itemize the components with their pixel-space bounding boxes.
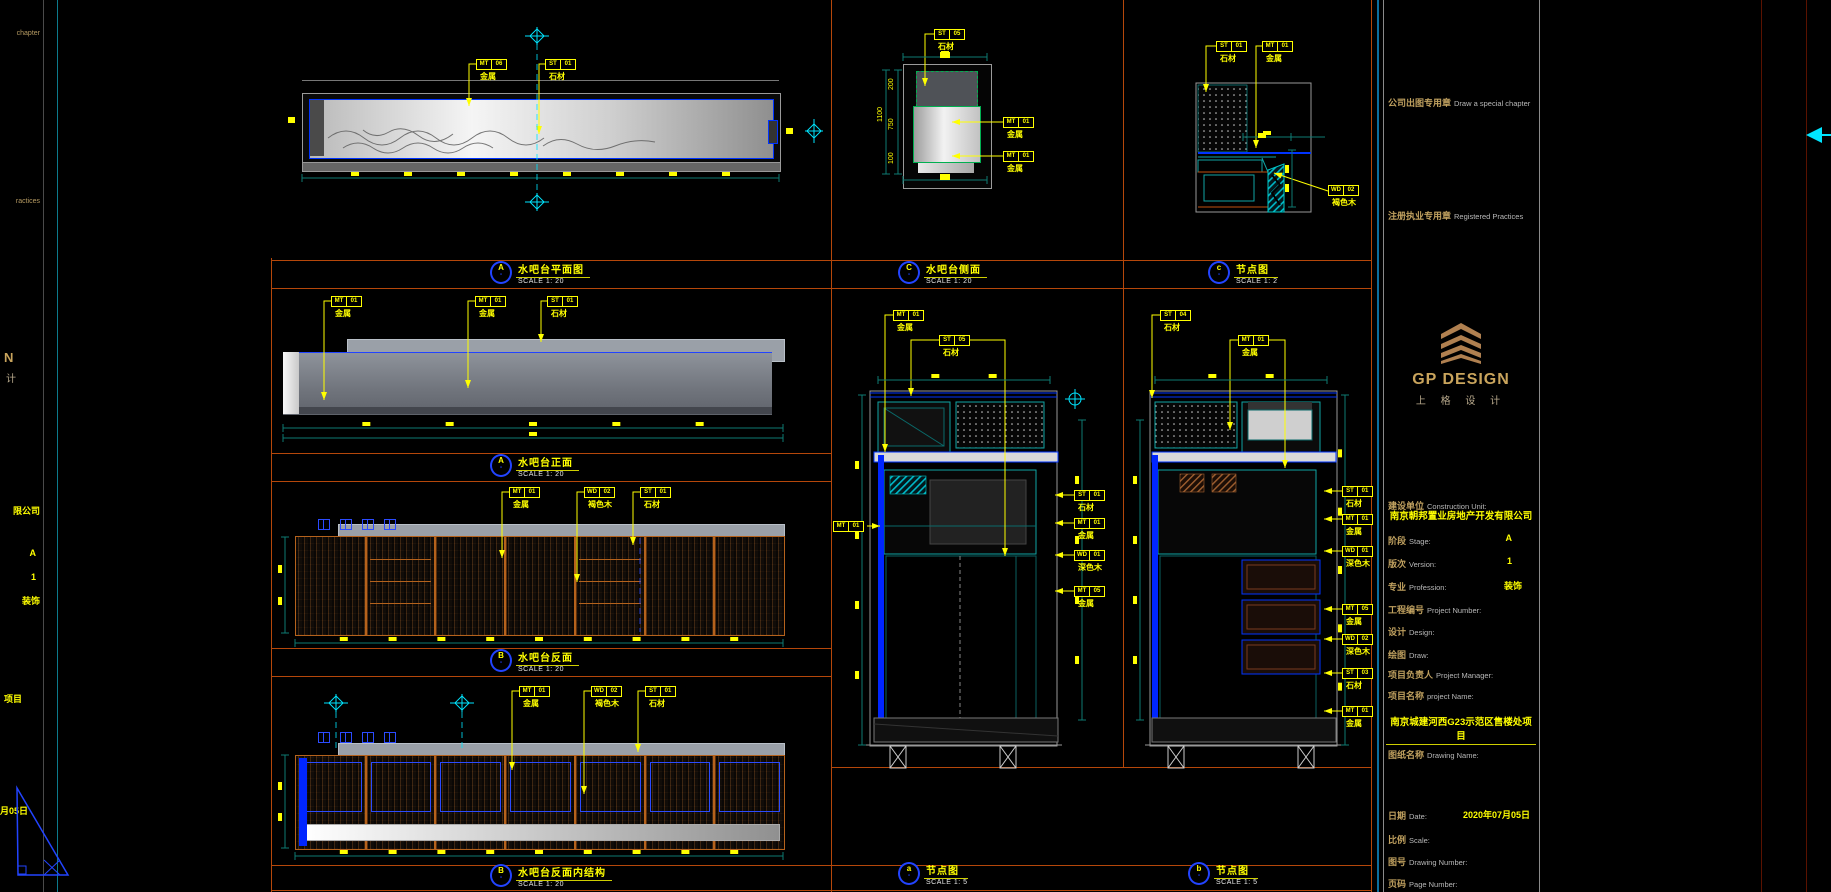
blue-marker-glyph (318, 519, 330, 530)
material-tag-label: 石材 (1164, 322, 1180, 333)
titleblock-left-border (1383, 0, 1384, 892)
view-label-bubble: B- (490, 864, 512, 887)
marble-pattern (323, 118, 743, 158)
material-tag: ST01 (545, 59, 576, 70)
material-tag-label: 深色木 (1346, 646, 1370, 657)
tb-row-drawing-number: 图号Drawing Number: (1388, 852, 1536, 870)
plan-view-drawing (302, 93, 781, 172)
material-tag-label: 金属 (1242, 347, 1258, 358)
view-label: c-节点图SCALE 1: 2 (1208, 261, 1278, 285)
material-tag: MT06 (476, 59, 507, 70)
dim-text: 1100 (877, 107, 884, 122)
plan-end-panel (310, 100, 324, 156)
company-chapter-row: 公司出图专用章Draw a special chapter (1388, 93, 1530, 111)
material-tag: ST01 (1342, 486, 1373, 497)
material-tag: MT01 (475, 296, 506, 307)
datum-target-icon (324, 694, 348, 712)
blue-marker-glyph (384, 732, 396, 743)
tb-row-profession: 专业Profession:装饰 (1388, 577, 1536, 595)
view-title: 水吧台反面内结构 (516, 864, 612, 881)
material-tag: MT01 (1003, 151, 1034, 162)
dim-text: 750 (888, 118, 895, 130)
tb-row-scale: 比例Scale: (1388, 830, 1536, 848)
company-chapter-en: Draw a special chapter (1454, 99, 1530, 108)
view-scale: SCALE 1: 20 (516, 881, 612, 888)
datum-target-icon (525, 193, 549, 211)
material-tag: MT01 (893, 310, 924, 321)
side-view-body (913, 106, 981, 163)
view-title: 水吧台侧面 (924, 261, 987, 278)
left-strip-chapter: chapter (0, 30, 40, 37)
view-label-bubble: A- (490, 261, 512, 284)
datum-target-icon (525, 27, 549, 45)
view-label: A-水吧台平面图SCALE 1: 20 (490, 261, 590, 285)
datum-target-icon (805, 119, 823, 143)
material-tag-label: 金属 (1266, 53, 1282, 64)
view-scale: SCALE 1: 5 (1214, 879, 1258, 886)
view-scale: SCALE 1: 20 (516, 278, 590, 285)
left-strip-practices: ractices (0, 198, 40, 205)
view-label-bubble: A- (490, 454, 512, 477)
logo-name: GP DESIGN (1393, 371, 1529, 389)
view-scale: SCALE 1: 20 (516, 666, 579, 673)
front-elev-end-panel (283, 352, 299, 414)
logo-chevrons-icon (1439, 322, 1483, 364)
dim-text: 200 (888, 78, 895, 90)
material-tag: ST01 (640, 487, 671, 498)
view-title: 节点图 (1214, 862, 1258, 879)
left-strip-company: 限公司 (0, 504, 40, 517)
material-tag-label: 石材 (644, 499, 660, 510)
material-tag: ST01 (547, 296, 578, 307)
material-tag-label: 褐色木 (588, 499, 612, 510)
view-title: 节点图 (1234, 261, 1278, 278)
titleblock-right-border (1539, 0, 1540, 892)
material-tag-label: 深色木 (1078, 562, 1102, 573)
material-tag-label: 金属 (1078, 598, 1094, 609)
material-tag: WD02 (584, 487, 615, 498)
view-label-bubble: C- (898, 261, 920, 284)
material-tag: WD01 (1074, 550, 1105, 561)
tb-row-project-number: 工程编号Project Number: (1388, 600, 1536, 618)
blue-marker-glyph (340, 519, 352, 530)
blue-marker-glyph (340, 732, 352, 743)
material-tag-label: 石材 (549, 71, 565, 82)
sheet-frame-line-left (57, 0, 58, 892)
tb-row-project-manager: 项目负责人Project Manager: (1388, 665, 1536, 683)
material-tag-label: 石材 (1346, 498, 1362, 509)
dim-text: 100 (888, 152, 895, 164)
material-tag-label: 金属 (1007, 163, 1023, 174)
view-label: a-节点图SCALE 1: 5 (898, 862, 968, 886)
material-tag-label: 石材 (649, 698, 665, 709)
material-tag: ST05 (934, 29, 965, 40)
registered-en: Registered Practices (1454, 212, 1523, 221)
material-tag: WD01 (1342, 546, 1373, 557)
side-view-back-panel (916, 71, 978, 107)
material-tag-label: 金属 (513, 499, 529, 510)
left-strip-profession: 装饰 (0, 594, 40, 607)
material-tag: WD02 (1342, 634, 1373, 645)
tb-row-version: 版次Version:1 (1388, 554, 1536, 572)
material-tag-label: 深色木 (1346, 558, 1370, 569)
viewport-divider (271, 890, 1371, 891)
material-tag-label: 金属 (897, 322, 913, 333)
material-tag: MT05 (1074, 586, 1105, 597)
blue-marker-glyph (362, 732, 374, 743)
material-tag-label: 石材 (551, 308, 567, 319)
material-tag: MT01 (1342, 514, 1373, 525)
view-label-bubble: c- (1208, 261, 1230, 284)
left-strip-logo-n: N (4, 350, 13, 365)
drawing-name-label: 图纸名称Drawing Name: (1388, 745, 1479, 763)
material-tag-label: 金属 (523, 698, 539, 709)
registered-cn: 注册执业专用章 (1388, 211, 1451, 221)
datum-target-icon (450, 694, 474, 712)
material-tag: MT01 (509, 487, 540, 498)
view-title: 水吧台反面 (516, 649, 579, 666)
material-tag: MT01 (1342, 706, 1373, 717)
view-label: A-水吧台正面SCALE 1: 20 (490, 454, 579, 478)
tb-row-design: 设计Design: (1388, 622, 1536, 640)
view-scale: SCALE 1: 5 (924, 879, 968, 886)
left-strip-stage: A (0, 548, 36, 558)
viewport-divider (271, 260, 1371, 261)
construction-company: 南京朝邦置业房地产开发有限公司 (1386, 508, 1536, 522)
material-tag: MT01 (519, 686, 550, 697)
material-tag-label: 石材 (943, 347, 959, 358)
material-tag: WD02 (1328, 185, 1359, 196)
view-title: 节点图 (924, 862, 968, 879)
project-name: 南京城建河西G23示范区售楼处项目 (1386, 714, 1536, 745)
side-view-base (918, 163, 974, 173)
project-name-label: 项目名称project Name: (1388, 686, 1474, 704)
extension-line (302, 80, 779, 81)
cad-canvas[interactable]: chapter ractices N 计 限公司 A 1 装饰 项目 月05日 (0, 0, 1831, 892)
left-strip-project: 项目 (4, 692, 22, 705)
material-tag: ST01 (645, 686, 676, 697)
section-a-drawing (830, 290, 1100, 790)
material-tag-label: 石材 (938, 41, 954, 52)
company-chapter-cn: 公司出图专用章 (1388, 98, 1451, 108)
tb-row-stage: 阶段Stage:A (1388, 531, 1536, 549)
tb-row-page-number: 页码Page Number: (1388, 874, 1536, 892)
view-label-bubble: a- (898, 862, 920, 885)
view-scale: SCALE 1: 20 (924, 278, 987, 285)
view-label: B-水吧台反面内结构SCALE 1: 20 (490, 864, 612, 888)
view-label: b-节点图SCALE 1: 5 (1188, 862, 1258, 886)
view-scale: SCALE 1: 20 (516, 471, 579, 478)
blue-marker-glyph (362, 519, 374, 530)
material-tag: MT01 (1262, 41, 1293, 52)
material-tag-label: 金属 (1346, 616, 1362, 627)
adjacent-sheet-border (43, 0, 44, 892)
material-tag-label: 金属 (480, 71, 496, 82)
view-label-bubble: b- (1188, 862, 1210, 885)
plan-sink-notch (768, 120, 778, 144)
viewport-divider (271, 676, 831, 677)
front-elevation-drawing (283, 352, 772, 415)
sheet-frame-line-right (1377, 0, 1379, 892)
cabinet-elevation (295, 755, 785, 850)
material-tag-label: 金属 (335, 308, 351, 319)
tb-row-date: 日期Date:2020年07月05日 (1388, 806, 1536, 824)
material-tag: MT01 (833, 521, 864, 532)
view-scale: SCALE 1: 2 (1234, 278, 1278, 285)
gp-design-logo: GP DESIGN 上 格 设 计 (1393, 322, 1529, 407)
next-sheet-border (1761, 0, 1762, 892)
material-tag: MT05 (1342, 604, 1373, 615)
material-tag-label: 石材 (1220, 53, 1236, 64)
material-tag-label: 金属 (1007, 129, 1023, 140)
view-label-bubble: B- (490, 649, 512, 672)
front-elev-kick (299, 407, 772, 414)
material-tag: WD02 (591, 686, 622, 697)
view-title: 水吧台平面图 (516, 261, 590, 278)
material-tag-label: 金属 (1346, 526, 1362, 537)
side-view-drawing (903, 64, 992, 189)
material-tag: MT01 (1238, 335, 1269, 346)
blue-marker-glyph (384, 519, 396, 530)
material-tag-label: 金属 (1078, 530, 1094, 541)
viewport-divider (271, 288, 1371, 289)
material-tag-label: 石材 (1346, 680, 1362, 691)
view-label: B-水吧台反面SCALE 1: 20 (490, 649, 579, 673)
view-title: 水吧台正面 (516, 454, 579, 471)
tb-row-draw: 绘图Draw: (1388, 645, 1536, 663)
material-tag: MT01 (1074, 518, 1105, 529)
material-tag-label: 褐色木 (1332, 197, 1356, 208)
registered-row: 注册执业专用章Registered Practices (1388, 206, 1523, 224)
view-label: C-水吧台侧面SCALE 1: 20 (898, 261, 987, 285)
material-tag: ST01 (1216, 41, 1247, 52)
viewport-marker-icon (1804, 124, 1831, 146)
viewport-divider (271, 258, 272, 892)
left-strip-version: 1 (0, 572, 36, 582)
blue-marker-glyph (318, 732, 330, 743)
material-tag: ST05 (939, 335, 970, 346)
plan-front-edge (303, 162, 780, 171)
material-tag: MT01 (1003, 117, 1034, 128)
material-tag-label: 金属 (479, 308, 495, 319)
material-tag: ST01 (1074, 490, 1105, 501)
viewport-divider (271, 481, 831, 482)
viewport-divider (1123, 0, 1124, 767)
cabinet-elevation (295, 536, 785, 636)
fold-mark-triangle (0, 780, 80, 892)
material-tag: ST03 (1342, 668, 1373, 679)
material-tag: MT01 (331, 296, 362, 307)
material-tag-label: 石材 (1078, 502, 1094, 513)
material-tag: ST04 (1160, 310, 1191, 321)
left-strip-logo-ji: 计 (6, 370, 16, 385)
material-tag-label: 褐色木 (595, 698, 619, 709)
logo-cn: 上 格 设 计 (1393, 392, 1529, 407)
material-tag-label: 金属 (1346, 718, 1362, 729)
